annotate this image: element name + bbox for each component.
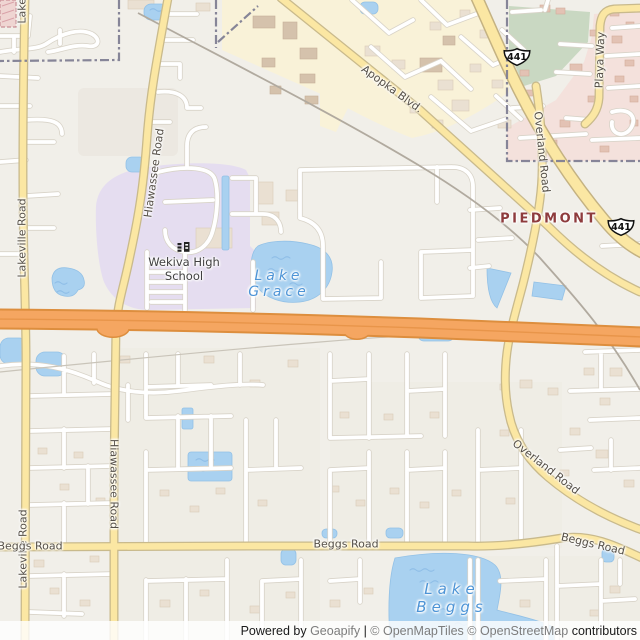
school-icon — [177, 241, 192, 253]
road-label-playa-way: Playa Way — [593, 31, 608, 88]
poi-label-line2: School — [148, 269, 220, 283]
openstreetmap-link[interactable]: © OpenStreetMap — [467, 624, 571, 638]
place-label-piedmont: PIEDMONT — [500, 212, 598, 227]
motorway — [0, 318, 640, 340]
poi-label-line1: Wekiva High — [148, 255, 220, 269]
openmaptiles-link[interactable]: © OpenMapTiles — [370, 624, 467, 638]
attribution-separator: | — [360, 624, 370, 638]
attribution-bar: Powered by Geoapify | © OpenMapTiles © O… — [0, 621, 640, 640]
road-label-beggs-mid: Beggs Road — [313, 538, 378, 551]
geoapify-link[interactable]: Geoapify — [310, 624, 360, 638]
route-shield-441-north: 441 — [502, 48, 532, 67]
route-shield-441-south: 441 — [606, 218, 636, 237]
road-label-beggs-west: Beggs Road — [0, 540, 63, 553]
road-label-lakeville-partial: Lakeville Road — [16, 0, 29, 24]
attribution-contributors: contributors — [572, 624, 637, 638]
svg-text:441: 441 — [507, 52, 527, 63]
road-label-hiawassee-south: Hiawassee Road — [108, 439, 121, 529]
canal — [222, 176, 229, 250]
map-canvas[interactable]: Hiawassee Road Hiawassee Road Lakeville … — [0, 0, 640, 640]
water-label-lake-beggs: Lake Beggs — [416, 580, 487, 616]
poi-label-wekiva-high-school: Wekiva High School — [148, 255, 220, 283]
svg-text:441: 441 — [611, 222, 631, 233]
attribution-powered-by: Powered by — [241, 624, 310, 638]
water-label-lake-grace: Lake Grace — [248, 268, 310, 300]
road-label-lakeville-north: Lakeville Road — [16, 198, 29, 277]
